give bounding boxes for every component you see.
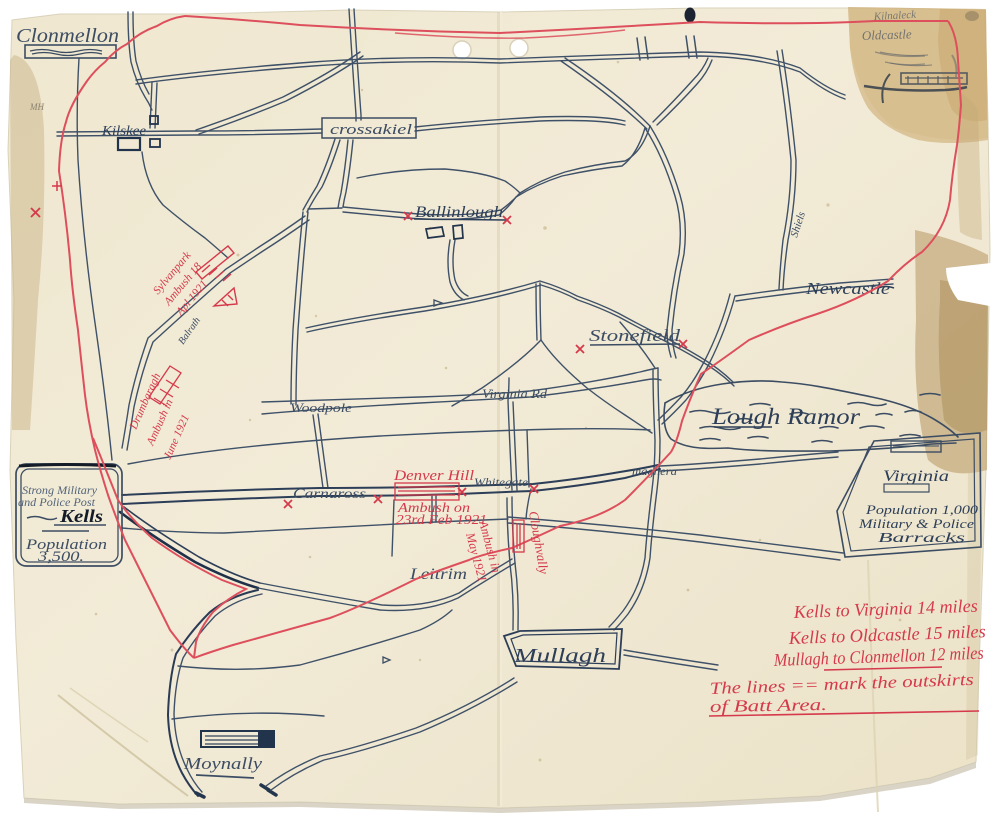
svg-text:crossakiel: crossakiel <box>330 122 412 138</box>
svg-text:Leitrim: Leitrim <box>409 566 467 583</box>
svg-text:Military & Police: Military & Police <box>858 516 975 531</box>
svg-text:Virginia: Virginia <box>883 468 949 485</box>
svg-text:Barracks: Barracks <box>878 530 965 545</box>
svg-text:Denver Hill: Denver Hill <box>393 468 474 484</box>
svg-text:Population 1,000: Population 1,000 <box>865 502 979 517</box>
svg-text:Stonefield: Stonefield <box>589 326 681 345</box>
svg-text:Moynally: Moynally <box>183 754 263 773</box>
svg-text:Clonmellon: Clonmellon <box>16 26 119 47</box>
svg-text:Whitegate: Whitegate <box>474 477 528 489</box>
svg-text:Virginia Rd: Virginia Rd <box>482 387 548 401</box>
svg-text:maghera: maghera <box>632 466 677 478</box>
svg-text:Lough Ramor: Lough Ramor <box>711 404 861 429</box>
svg-text:Kilskee: Kilskee <box>101 124 146 139</box>
svg-text:Woodpole: Woodpole <box>290 400 352 415</box>
svg-text:3,500.: 3,500. <box>37 549 84 565</box>
svg-text:MH: MH <box>29 102 44 112</box>
svg-text:of Batt Area.: of Batt Area. <box>710 695 827 716</box>
svg-text:23rd Feb 1921: 23rd Feb 1921 <box>396 512 487 527</box>
svg-text:Mullagh: Mullagh <box>513 645 606 667</box>
svg-text:Kells: Kells <box>59 506 103 526</box>
svg-text:Carnaross: Carnaross <box>293 486 366 501</box>
